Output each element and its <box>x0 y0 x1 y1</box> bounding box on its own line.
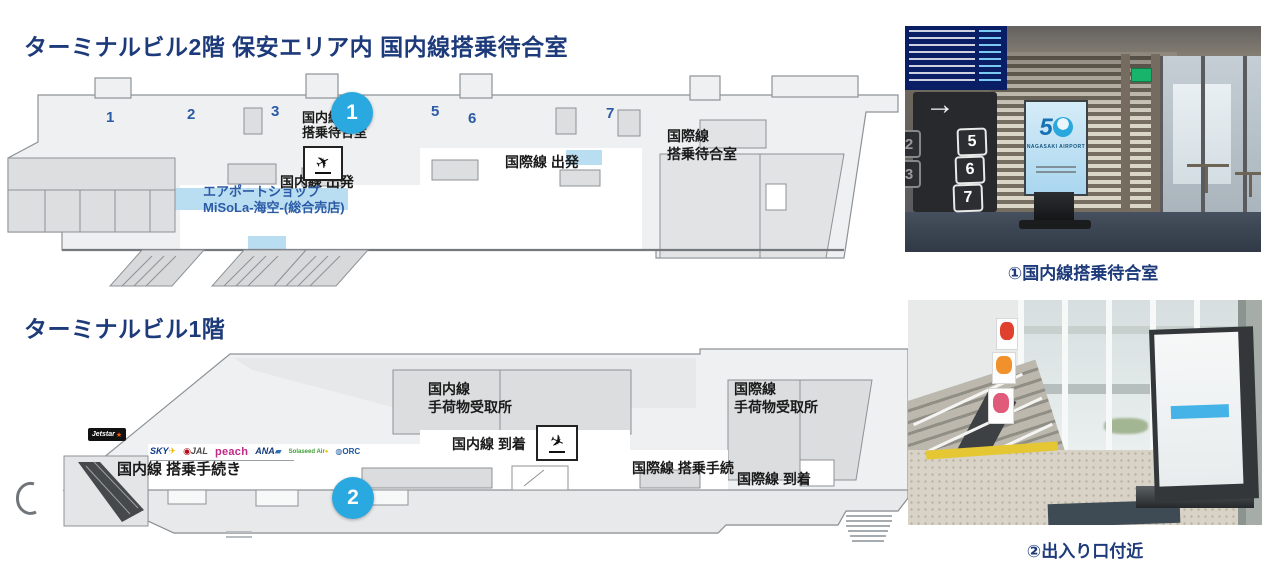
gate-number-3: 3 <box>271 104 279 119</box>
solaseed-logo: Solaseed Air● <box>289 449 329 455</box>
solaseed-dot-icon: ● <box>325 449 329 455</box>
airport-name: NAGASAKI AIRPORT <box>1027 144 1085 150</box>
intl-waiting-block <box>660 154 844 258</box>
hanging-banner <box>988 388 1014 424</box>
gate-number-5: 5 <box>431 104 439 119</box>
sign-gate-partial-3: 3 <box>905 160 921 188</box>
hatch-marks <box>226 532 252 537</box>
skymark-wing-icon: ✈ <box>169 446 177 456</box>
gate-number-2: 2 <box>187 107 195 122</box>
location-marker-1: 1 <box>331 92 373 134</box>
escalators-2f <box>110 250 368 286</box>
jet-bridge <box>306 74 338 98</box>
airport-shop-label-line2: MiSoLa-海空-(総合売店) <box>203 201 345 215</box>
ana-slash-icon: ▰ <box>275 446 282 456</box>
hanging-banner <box>996 318 1018 350</box>
jal-crane-icon: ◉ <box>183 446 191 456</box>
exit-sign <box>1131 68 1152 82</box>
screen-blue-bar <box>1171 404 1229 419</box>
jet-bridge <box>772 76 858 97</box>
stairs-hatch <box>846 516 892 541</box>
floor1-title: ターミナルビル1階 <box>24 310 225 344</box>
gate-number-6: 6 <box>468 111 476 126</box>
departure-plane-icon: ✈ <box>313 151 334 173</box>
international-waiting-label-line1: 国際線 <box>667 129 709 144</box>
photo2-caption: ②出入り口付近 <box>908 537 1262 562</box>
table-leg <box>1205 167 1208 193</box>
digital-signage-screen: 5 NAGASAKI AIRPORT <box>1024 100 1088 196</box>
sign-gate-partial-2: 2 <box>905 130 921 158</box>
banner-art <box>993 393 1010 413</box>
arrival-plane-sign: ✈ <box>536 425 578 461</box>
jet-bridge <box>460 74 492 98</box>
flight-status-rows <box>979 30 1001 86</box>
international-baggage-label-line1: 国際線 <box>734 382 776 397</box>
room-block <box>228 164 276 184</box>
airline-logo-row: SKY✈ ◉JAL peach ANA▰ Solaseed Air● ◍ORC <box>150 445 360 458</box>
table <box>1235 172 1261 175</box>
carpet-floor <box>905 212 1261 252</box>
skymark-logo: SKY✈ <box>150 446 176 457</box>
arrival-plane-icon: ✈ <box>547 431 567 452</box>
peach-logo: peach <box>215 446 248 458</box>
pillar <box>1151 54 1160 222</box>
anniversary-logo: 5 <box>1039 116 1072 140</box>
international-arrival-label: 国際線 到着 <box>737 472 811 487</box>
wave-circle-icon <box>1053 117 1073 137</box>
banner-art <box>996 356 1011 374</box>
international-baggage-label-line2: 手荷物受取所 <box>734 400 818 415</box>
flight-info-board <box>905 26 1007 90</box>
room-block <box>432 160 478 180</box>
gate-structure <box>244 108 262 134</box>
banner-art <box>1000 322 1014 340</box>
digital-signage-kiosk <box>1149 326 1259 502</box>
jetstar-star-icon: ★ <box>116 431 122 439</box>
domestic-baggage-label-line1: 国内線 <box>428 382 470 397</box>
photo-entrance-area <box>908 300 1262 525</box>
entrance-hook <box>17 483 36 513</box>
sign-gate-6: 6 <box>955 155 986 184</box>
photo-domestic-waiting-room: → 5 6 7 2 3 5 NAGASAKI AIRPORT <box>905 26 1261 252</box>
gate-structure <box>618 110 640 136</box>
location-marker-2: 2 <box>332 477 374 519</box>
table <box>1187 164 1229 167</box>
departure-plane-sign: ✈ <box>303 146 343 181</box>
window-mullions <box>1159 56 1261 214</box>
signage-base <box>1019 220 1091 229</box>
international-waiting-label-line2: 搭乗待合室 <box>667 147 737 162</box>
gate-structure <box>556 108 576 134</box>
jet-bridge <box>690 76 720 100</box>
gate-number-7: 7 <box>606 106 614 121</box>
gate-number-1: 1 <box>106 110 114 125</box>
orc-logo: ◍ORC <box>335 447 360 456</box>
floor2-map <box>0 70 912 295</box>
room-block <box>560 170 600 186</box>
domestic-checkin-label: 国内線 搭乗手続き <box>117 462 241 479</box>
jetstar-logo: Jetstar ★ <box>88 428 126 441</box>
flight-rows <box>909 30 975 86</box>
table-leg <box>1249 175 1252 197</box>
domestic-baggage-label-line2: 手荷物受取所 <box>428 400 512 415</box>
jet-bridge <box>95 78 131 98</box>
pillar <box>1121 54 1130 222</box>
floor2-title: ターミナルビル2階 保安エリア内 国内線搭乗待合室 <box>24 28 568 62</box>
sign-gate-7: 7 <box>953 183 984 212</box>
screen-small-text <box>1036 166 1076 176</box>
counter-row <box>362 468 492 488</box>
domestic-arrival-label: 国内線 到着 <box>452 437 526 452</box>
sign-gate-5: 5 <box>957 127 988 156</box>
arrow-right-icon: → <box>925 90 955 120</box>
signage-stand <box>1034 192 1074 222</box>
hanging-banner <box>992 352 1016 384</box>
jal-logo: ◉JAL <box>183 446 208 457</box>
page: ターミナルビル2階 保安エリア内 国内線搭乗待合室 ターミナルビル1階 <box>0 0 1276 570</box>
international-checkin-label: 国際線 搭乗手続 <box>632 461 734 476</box>
photo1-caption: ①国内線搭乗待合室 <box>905 259 1261 284</box>
signage-screen <box>1154 332 1243 487</box>
airport-shop-label-line1: エアポートショップ <box>203 185 320 199</box>
ana-logo: ANA▰ <box>255 446 281 457</box>
international-departure-label: 国際線 出発 <box>505 155 579 170</box>
